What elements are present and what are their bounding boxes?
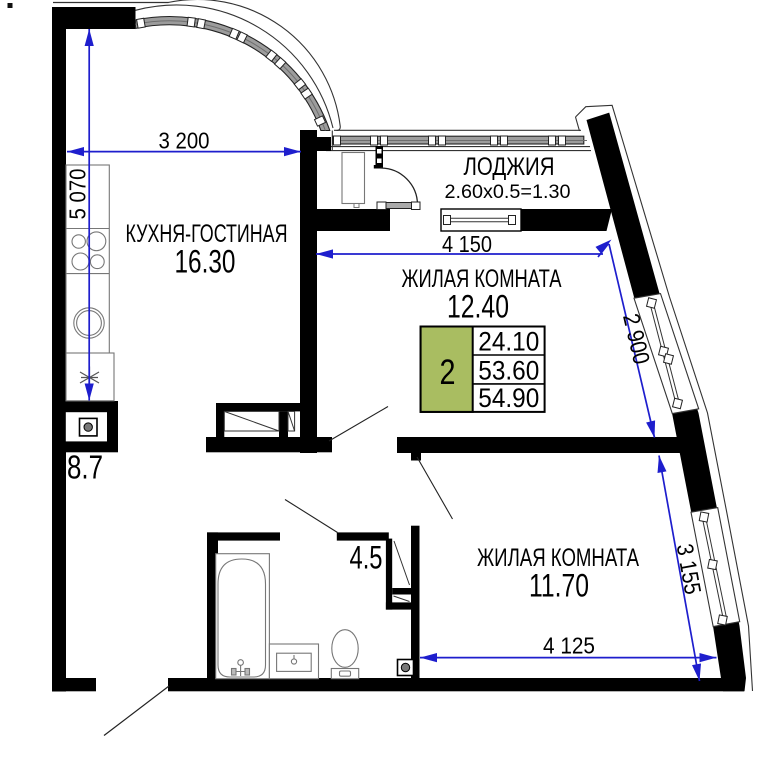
- svg-text:12.40: 12.40: [447, 289, 509, 325]
- svg-text:54.90: 54.90: [478, 383, 539, 413]
- svg-text:24.10: 24.10: [478, 327, 539, 357]
- svg-text:8.7: 8.7: [67, 450, 103, 487]
- svg-text:ЛОДЖИЯ: ЛОДЖИЯ: [464, 153, 555, 181]
- svg-text:16.30: 16.30: [175, 244, 236, 280]
- svg-text:2: 2: [440, 353, 456, 392]
- svg-text:11.70: 11.70: [529, 568, 589, 604]
- svg-text:5 070: 5 070: [65, 169, 91, 220]
- svg-text:4 150: 4 150: [442, 231, 492, 257]
- svg-text:4 125: 4 125: [543, 633, 595, 659]
- svg-text:3 200: 3 200: [159, 128, 210, 154]
- svg-text:4.5: 4.5: [350, 540, 383, 576]
- svg-text:2.60x0.5=1.30: 2.60x0.5=1.30: [445, 181, 571, 203]
- svg-text:53.60: 53.60: [478, 356, 539, 386]
